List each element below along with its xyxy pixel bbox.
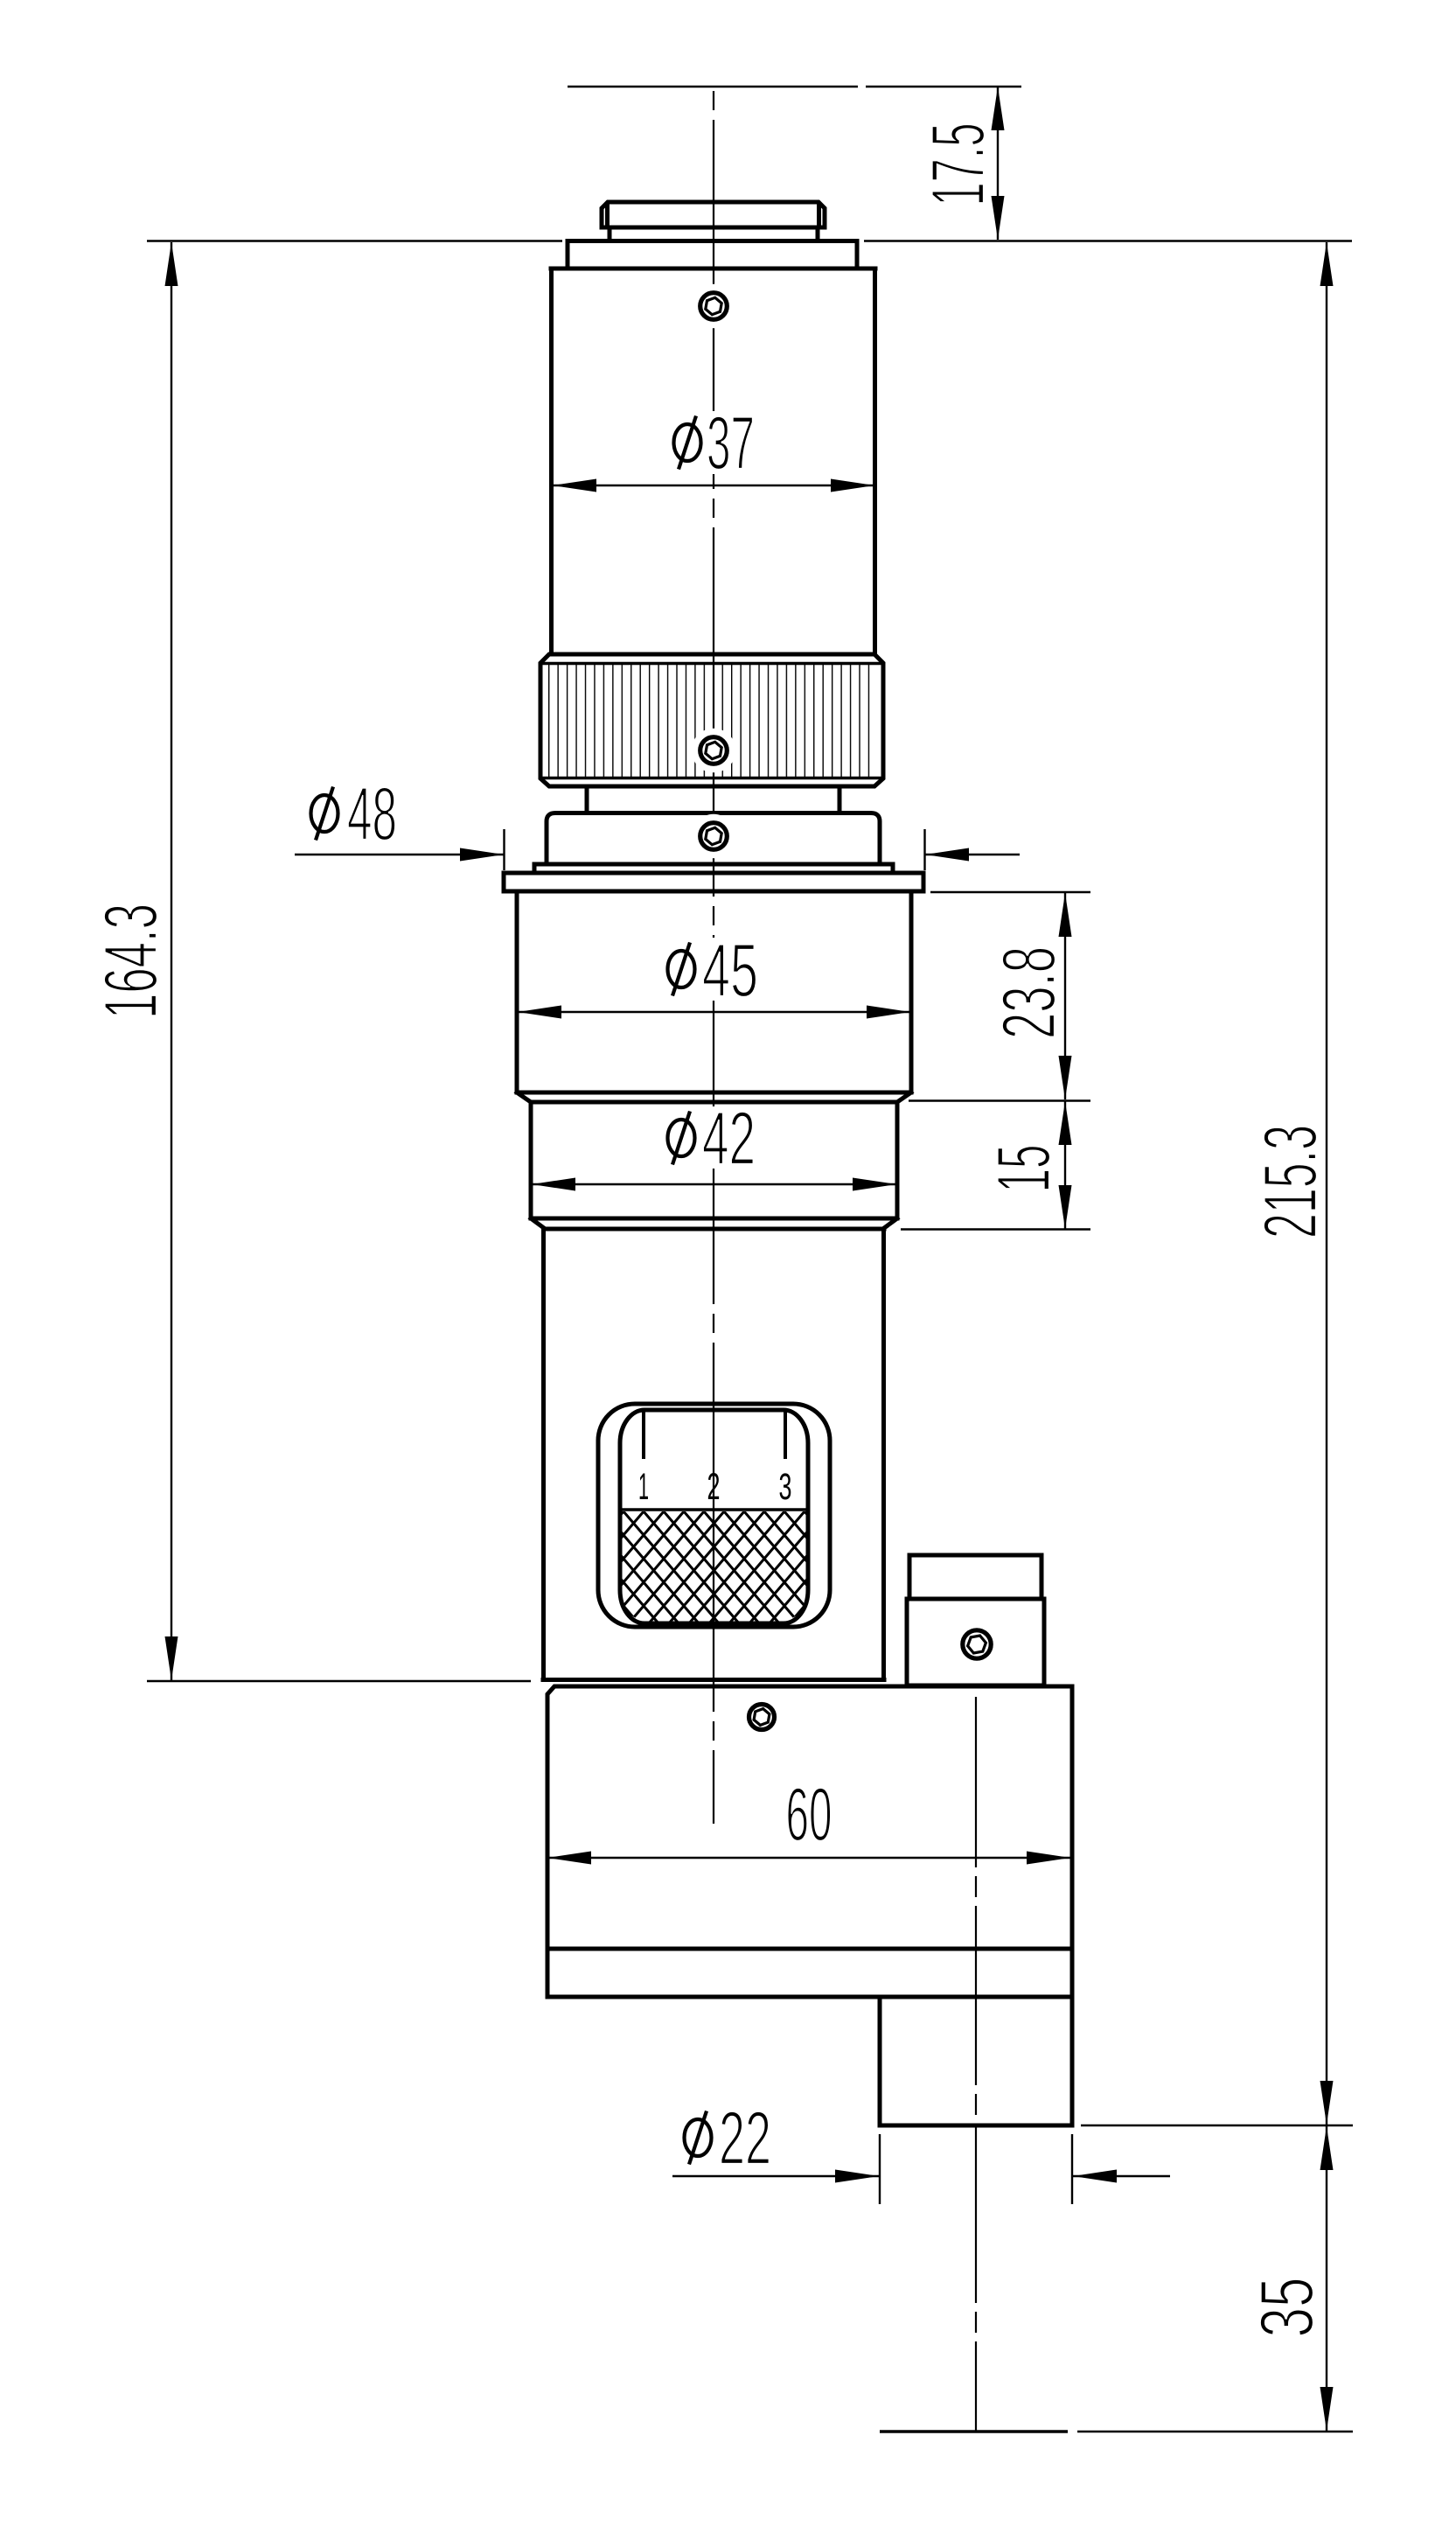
svg-text:60: 60: [786, 1773, 832, 1857]
svg-text:48: 48: [347, 772, 397, 856]
svg-text:45: 45: [702, 929, 758, 1013]
svg-text:164.3: 164.3: [89, 904, 173, 1019]
svg-text:22: 22: [719, 2097, 771, 2181]
svg-text:1: 1: [638, 1466, 649, 1508]
svg-text:42: 42: [702, 1097, 756, 1181]
svg-text:15: 15: [982, 1145, 1066, 1193]
svg-text:2: 2: [707, 1466, 721, 1508]
svg-text:215.3: 215.3: [1249, 1125, 1333, 1239]
svg-text:17.5: 17.5: [916, 123, 1000, 206]
svg-text:37: 37: [707, 401, 755, 485]
svg-text:35: 35: [1245, 2278, 1329, 2338]
svg-text:3: 3: [779, 1466, 792, 1508]
svg-text:23.8: 23.8: [987, 946, 1071, 1039]
